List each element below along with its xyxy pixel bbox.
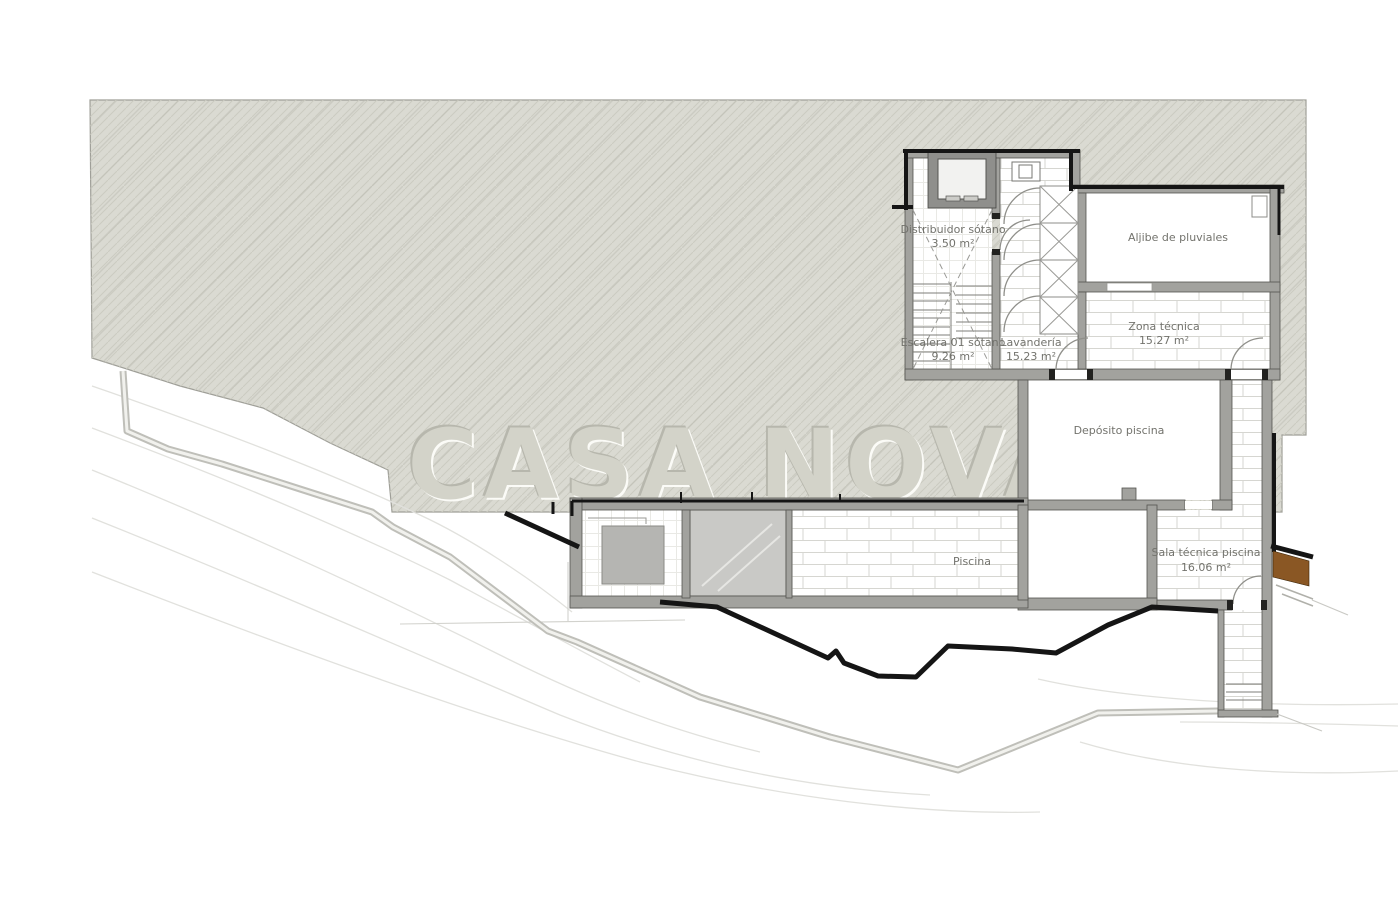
- label-lavanderia-area: 15.23 m²: [1006, 350, 1056, 363]
- wall-pool-divider-1: [682, 510, 690, 598]
- pool-equipment-block: [602, 526, 664, 584]
- wall-pool-east: [1018, 505, 1028, 600]
- label-aljibe: Aljibe de pluviales: [1128, 231, 1228, 244]
- wall-distribuidor-east-b: [992, 252, 1000, 369]
- aljibe-vent: [1252, 196, 1267, 217]
- label-zona-tecnica: Zona técnica: [1128, 320, 1199, 333]
- label-piscina: Piscina: [953, 555, 991, 568]
- room-middle-floor: [1028, 510, 1147, 598]
- label-sala-tecnica-area: 16.06 m²: [1181, 561, 1231, 574]
- wall-corridor-south: [1218, 710, 1278, 717]
- wall-east-lower: [1262, 380, 1272, 717]
- aljibe-wall-sill: [1107, 283, 1152, 291]
- wall-pool-divider-2: [786, 510, 792, 598]
- elevator: [928, 151, 996, 208]
- wall-corridor-west: [1218, 610, 1224, 717]
- wall-deposito-west: [1018, 380, 1028, 510]
- floor-plan-page: CASA NOVA CASA NOVA CASA NOVA: [0, 0, 1398, 900]
- label-lavanderia: Lavandería: [1000, 336, 1061, 349]
- elevator-door-left: [946, 196, 960, 201]
- label-distribuidor-area: 3.50 m²: [931, 237, 974, 250]
- label-distribuidor: Distribuidor sótano: [900, 223, 1005, 236]
- elevator-door-right: [964, 196, 978, 201]
- wall-middle-south: [1018, 598, 1157, 610]
- label-deposito: Depósito piscina: [1074, 424, 1165, 437]
- label-sala-tecnica: Sala técnica piscina: [1151, 546, 1260, 559]
- wall-deposito-east: [1220, 380, 1232, 510]
- wall-lavanderia-aljibe: [1078, 193, 1086, 292]
- washing-machine-icon: [1012, 162, 1040, 181]
- wall-deposito-south-a: [1018, 500, 1185, 510]
- floor-plan-svg: CASA NOVA CASA NOVA CASA NOVA: [0, 0, 1398, 900]
- room-deposito-floor: [1028, 380, 1220, 500]
- elevator-car: [938, 159, 986, 199]
- exterior-stair: [1271, 546, 1348, 731]
- wall-pool-south: [570, 596, 1028, 608]
- pillar-stub: [1122, 488, 1136, 500]
- terrain-cut-south: [660, 602, 1218, 677]
- label-escalera: Escalera 01 sótano: [901, 336, 1006, 349]
- label-zona-tecnica-area: 15.27 m²: [1139, 334, 1189, 347]
- label-escalera-area: 9.26 m²: [931, 350, 974, 363]
- wall-lavanderia-zona: [1078, 292, 1086, 369]
- wall-deposito-south-b: [1212, 500, 1232, 510]
